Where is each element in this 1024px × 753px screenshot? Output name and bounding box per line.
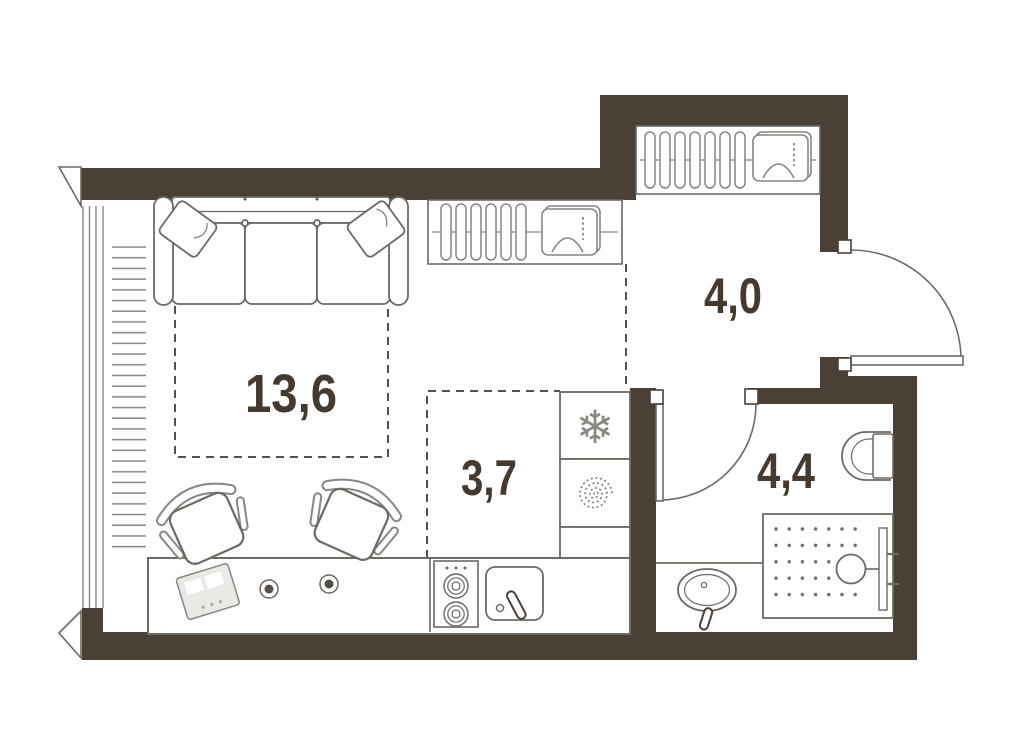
room-label-living: 13,6 [245, 364, 337, 424]
hanger-icon [471, 204, 481, 260]
fridge: ❄ [560, 392, 630, 459]
floor-plan-svg: ❄ [0, 0, 1024, 753]
iron-icon [753, 132, 811, 181]
hanger-icon [720, 132, 730, 188]
toilet [842, 432, 893, 480]
cup-icon [320, 575, 338, 593]
kitchen-cabinet [560, 527, 630, 558]
hanger-icon [645, 132, 655, 188]
floor-plan: ❄ [0, 0, 1024, 753]
shower-head [837, 555, 866, 584]
glass-screen [879, 528, 887, 610]
room-label-bathroom: 4,4 [757, 443, 815, 499]
hanger-icon [690, 132, 700, 188]
toilet-tank [873, 434, 893, 478]
window-corner-bottom-icon [59, 611, 81, 658]
kitchen-sink [486, 567, 543, 620]
radiator [112, 242, 146, 551]
door-swing-arc [851, 250, 961, 360]
room-label-hallway: 4,0 [704, 268, 762, 324]
door-swing-arc [660, 404, 756, 500]
hanger-icon [501, 204, 511, 260]
door-hinge [745, 389, 758, 404]
entry-door [838, 240, 963, 371]
window [83, 206, 103, 608]
stove [434, 561, 478, 627]
hanger-icon [456, 204, 466, 260]
hanger-icon [441, 204, 451, 260]
wardrobe-living [428, 200, 622, 264]
iron-icon [542, 206, 600, 255]
window-corner-top-icon [59, 167, 81, 206]
hanger-icon [735, 132, 745, 188]
cup-icon [260, 580, 278, 598]
hanger-icon [516, 204, 526, 260]
wardrobe-hall [636, 126, 820, 194]
snowflake-icon: ❄ [576, 400, 615, 454]
washing-machine [560, 459, 630, 527]
door-leaf [851, 356, 963, 365]
bathroom-sink [678, 569, 736, 631]
hanger-icon [705, 132, 715, 188]
hanger-icon [660, 132, 670, 188]
door-leaf [656, 404, 663, 501]
hanger-icon [486, 204, 496, 260]
room-label-kitchen: 3,7 [461, 450, 517, 506]
door-hinge [838, 358, 851, 371]
bathroom-door [650, 389, 758, 501]
shower [763, 514, 899, 618]
hanger-icon [675, 132, 685, 188]
door-hinge [838, 240, 851, 253]
chair [301, 472, 405, 567]
door-hinge [650, 390, 663, 404]
